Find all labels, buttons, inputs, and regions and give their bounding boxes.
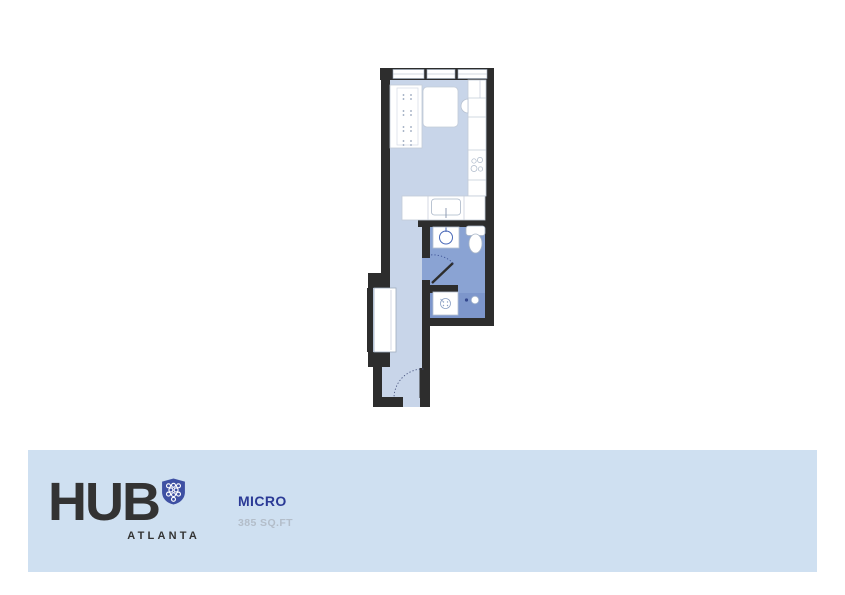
hub-logo: HUB ATLANTA	[48, 480, 200, 542]
floor-plan	[367, 68, 494, 407]
entry-doorway-floor	[403, 397, 420, 407]
kitchen-sink-counter	[402, 196, 485, 220]
window-icon	[427, 70, 455, 79]
murphy-bed-unit	[390, 85, 422, 148]
closet	[374, 288, 396, 352]
entry-floor	[382, 367, 390, 397]
windows	[393, 70, 487, 79]
bed	[423, 87, 458, 127]
unit-name: MICRO	[238, 493, 293, 509]
window-icon	[393, 70, 424, 79]
page: HUB ATLANTA	[0, 0, 845, 595]
washbasin-bowl-icon	[440, 231, 453, 244]
wall-bathroom-left-upper	[422, 227, 430, 258]
wall-bottom-left	[373, 397, 403, 407]
wall-closet-outer	[367, 288, 373, 352]
info-banner: HUB ATLANTA	[28, 450, 817, 572]
brand-name: HUB	[48, 480, 159, 524]
wall-bathroom-bottom	[422, 318, 494, 326]
bathroom-washbasin	[433, 227, 459, 248]
unit-area: 385 SQ.FT	[238, 517, 293, 529]
window-icon	[458, 70, 487, 79]
unit-info: MICRO 385 SQ.FT	[238, 493, 293, 529]
wall-closet-stub	[368, 352, 390, 367]
wall-left-upper	[381, 70, 390, 283]
shield-honeycomb-icon	[161, 478, 186, 505]
shower	[433, 292, 458, 315]
bathroom-doorway-floor	[422, 258, 430, 280]
wall-jog	[368, 273, 390, 288]
